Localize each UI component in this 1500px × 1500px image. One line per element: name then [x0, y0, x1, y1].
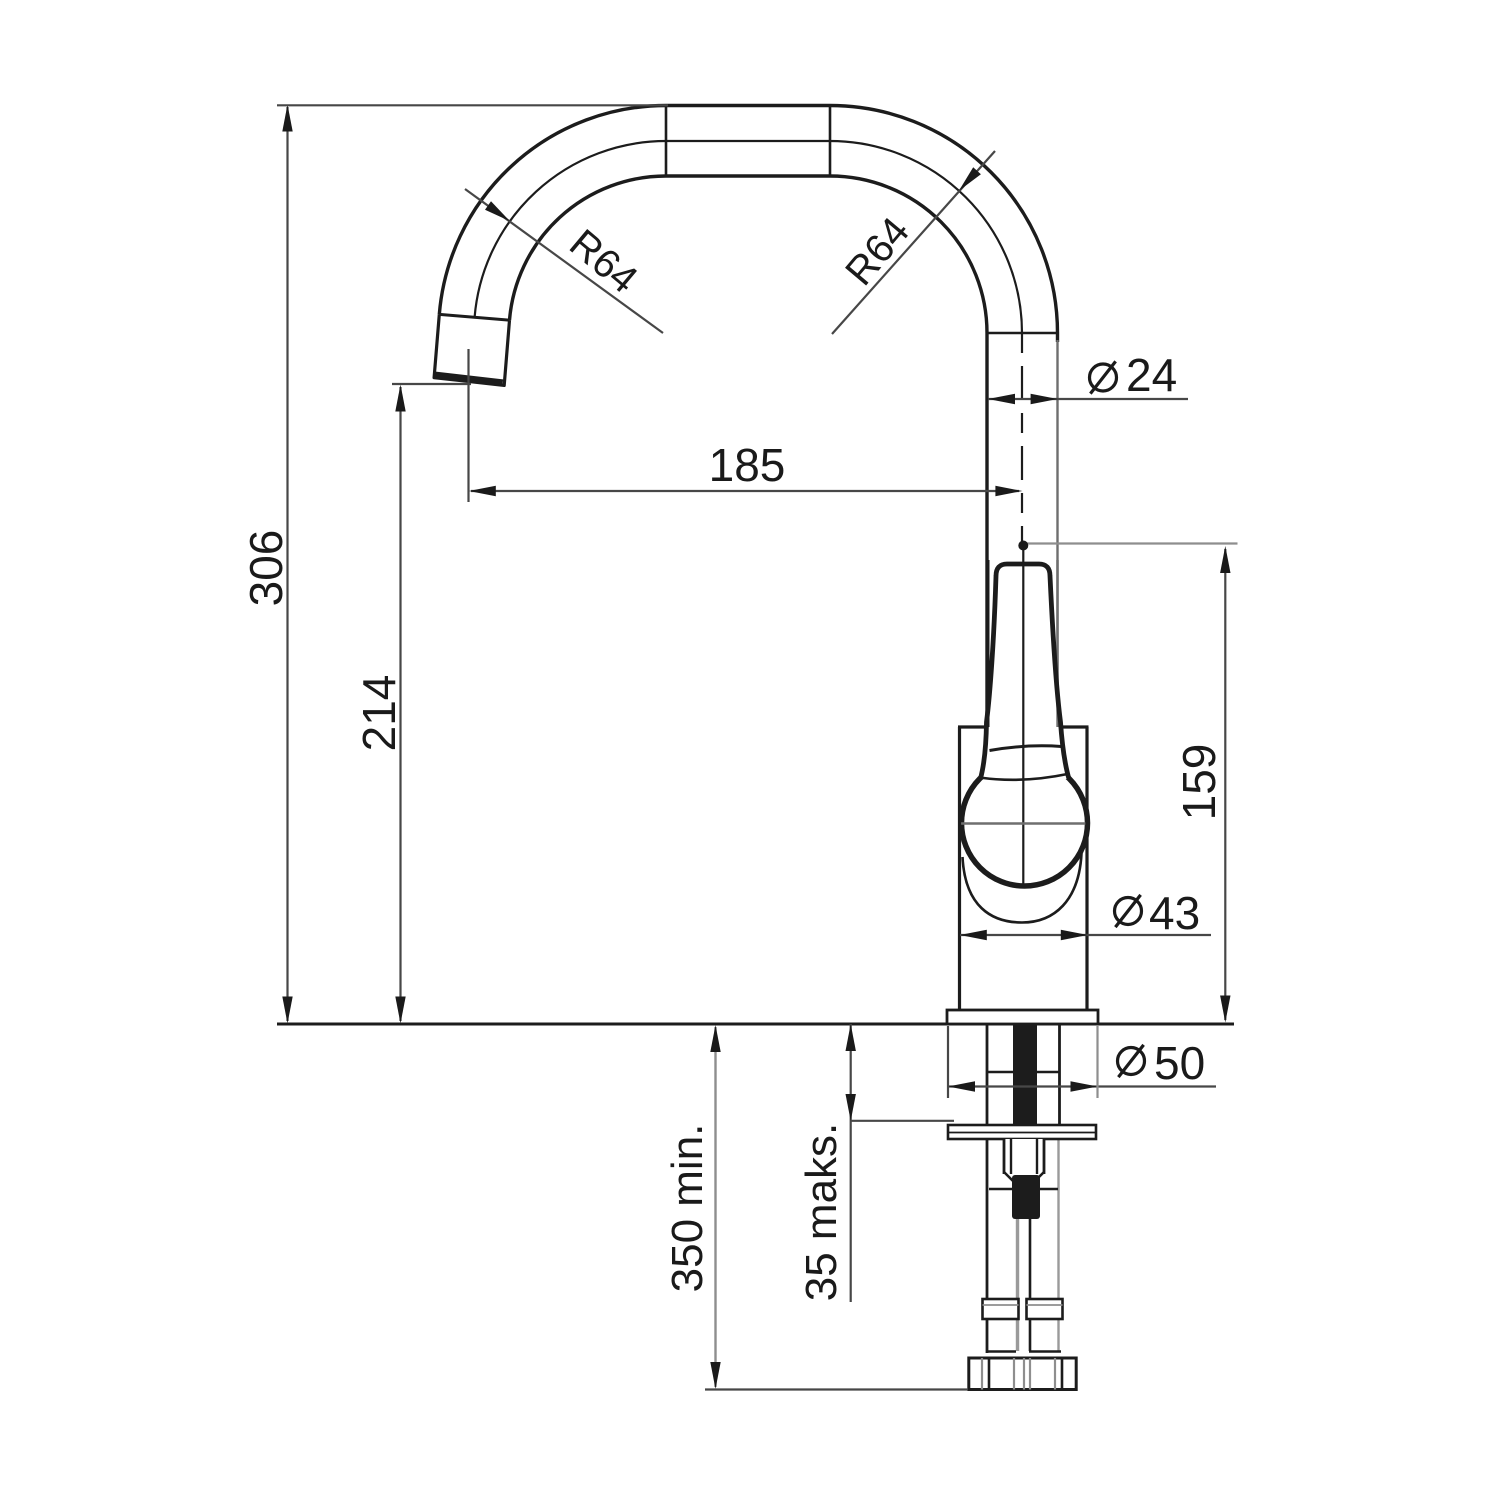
svg-text:350 min.: 350 min. [663, 1124, 712, 1293]
svg-text:35 maks.: 35 maks. [797, 1123, 846, 1302]
svg-text:306: 306 [240, 530, 292, 607]
svg-text:185: 185 [709, 439, 786, 491]
svg-text:159: 159 [1173, 744, 1225, 821]
svg-text:50: 50 [1154, 1037, 1205, 1089]
svg-text:43: 43 [1149, 887, 1200, 939]
svg-text:214: 214 [353, 675, 405, 752]
svg-text:24: 24 [1126, 349, 1177, 401]
